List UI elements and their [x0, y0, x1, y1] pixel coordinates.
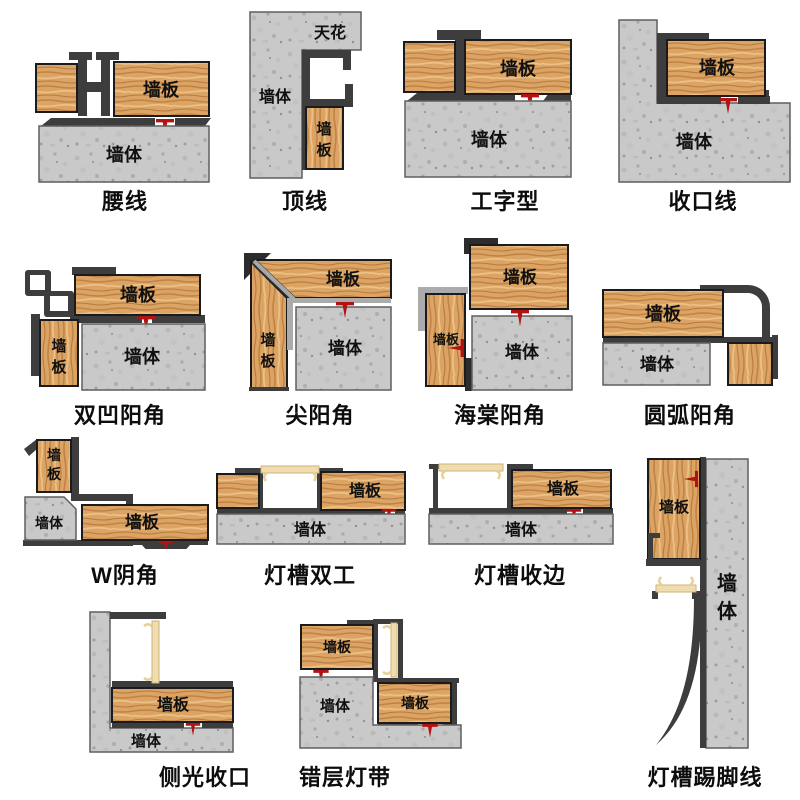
label-panel: 墙板 [120, 284, 157, 305]
label-wall: 墙体 [294, 520, 327, 539]
profile-hollow [30, 275, 45, 290]
label-panel-char: 板 [316, 141, 332, 159]
label-panel: 墙板 [433, 332, 460, 347]
diagram-light-trough-edge: 墙板 墙体 [425, 460, 617, 546]
caption-light-trough-double: 灯槽双工 [225, 558, 395, 590]
label-panel: 墙板 [699, 57, 736, 78]
caption-closing-line: 收口线 [618, 184, 788, 216]
led-strip [152, 621, 159, 683]
caption-w-inner-corner: W阴角 [40, 558, 210, 590]
label-wall: 墙体 [328, 338, 363, 358]
label-panel: 墙板 [503, 267, 538, 287]
led-hook [313, 473, 316, 481]
diagram-staggered-light-strip: 墙板 墙体 墙板 [295, 617, 467, 749]
diagram-waistline: 墙板 墙体 [35, 42, 220, 184]
label-panel-char: 板 [260, 352, 276, 370]
diagram-crown-line: 天花 墙体 墙 板 [248, 10, 363, 185]
label-panel: 墙板 [125, 512, 160, 532]
wood-panel [217, 474, 259, 508]
label-wall: 墙体 [505, 342, 540, 362]
wood-panel [728, 343, 772, 385]
caption-crown-line: 顶线 [220, 184, 390, 216]
diagram-double-concave-outer-corner: 墙板 墙 板 墙体 [18, 250, 213, 392]
label-wall-char: 墙 [717, 571, 737, 595]
label-wall-char: 体 [717, 599, 738, 623]
diagram-w-inner-corner: 墙 板 墙体 墙板 [20, 437, 210, 549]
profile-hollow [50, 296, 68, 311]
label-panel-char: 墙 [47, 447, 61, 463]
diagram-light-trough-skirting: 墙 体 墙板 [638, 455, 790, 750]
led-hook [442, 471, 445, 479]
label-panel-char: 墙 [260, 331, 275, 349]
wood-panel [306, 107, 343, 169]
led-strip [391, 623, 397, 677]
label-panel: 墙板 [157, 695, 190, 714]
caption-begonia-outer-corner: 海棠阳角 [415, 398, 585, 430]
label-panel: 墙板 [500, 58, 537, 79]
label-wall: 墙体 [676, 131, 713, 152]
label-panel: 墙板 [401, 695, 430, 711]
label-ceiling: 天花 [314, 23, 346, 42]
led-hook [690, 577, 693, 585]
caption-sharp-outer-corner: 尖阳角 [235, 398, 405, 430]
led-strip [439, 464, 503, 471]
diagram-i-shape: 墙板 墙体 [403, 28, 575, 180]
diagram-closing-line: 墙体 墙板 [618, 18, 792, 183]
wood-panel [36, 64, 77, 112]
label-wall: 墙体 [640, 354, 675, 374]
label-wall: 墙体 [320, 697, 351, 715]
label-wall: 墙体 [35, 515, 64, 531]
label-panel: 墙板 [547, 479, 580, 498]
caption-staggered-light-strip: 错层灯带 [245, 760, 445, 792]
diagram-begonia-outer-corner: 墙板 墙板 墙体 [418, 238, 578, 393]
caption-light-trough-skirting: 灯槽踢脚线 [610, 760, 800, 792]
label-panel-char: 板 [51, 358, 67, 376]
aluminum-profile [646, 533, 702, 745]
led-hook [659, 577, 662, 585]
profile-diagram-sheet: 墙板 墙体 天花 墙体 墙 板 [0, 0, 800, 800]
aluminum-profile [249, 387, 289, 391]
label-panel: 墙板 [645, 303, 682, 324]
caption-waistline: 腰线 [40, 184, 210, 216]
caption-light-trough-edge: 灯槽收边 [435, 558, 605, 590]
label-panel-char: 墙 [316, 120, 331, 138]
led-hook [144, 624, 152, 627]
label-panel-char: 墙 [51, 337, 66, 355]
led-hook [497, 471, 500, 479]
label-wall: 墙体 [131, 732, 162, 750]
label-panel: 墙板 [659, 498, 690, 516]
led-strip [656, 585, 696, 592]
label-panel-char: 板 [47, 466, 62, 482]
led-hook [144, 677, 152, 680]
wood-panel [404, 42, 455, 92]
label-wall: 墙体 [106, 144, 143, 165]
label-panel: 墙板 [143, 79, 180, 100]
led-strip [261, 466, 319, 473]
aluminum-profile [24, 439, 37, 456]
label-wall: 墙体 [471, 129, 508, 150]
led-hook [264, 473, 267, 481]
label-panel: 墙板 [323, 639, 352, 655]
label-wall: 墙体 [505, 520, 538, 539]
label-panel: 墙板 [349, 481, 382, 500]
caption-double-concave-outer-corner: 双凹阳角 [35, 398, 205, 430]
diagram-light-trough-double: 墙板 墙体 [215, 458, 407, 546]
label-wall: 墙体 [259, 87, 292, 106]
diagram-arc-outer-corner: 墙板 墙体 [600, 283, 790, 388]
label-panel: 墙板 [326, 269, 361, 289]
led-hook [383, 671, 391, 674]
caption-i-shape: 工字型 [420, 184, 590, 216]
aluminum-profile [287, 298, 293, 350]
led-hook [383, 626, 391, 629]
diagram-sharp-outer-corner: 墙板 墙 板 墙体 [243, 252, 393, 392]
caption-arc-outer-corner: 圆弧阳角 [605, 398, 775, 430]
label-wall: 墙体 [124, 346, 161, 367]
